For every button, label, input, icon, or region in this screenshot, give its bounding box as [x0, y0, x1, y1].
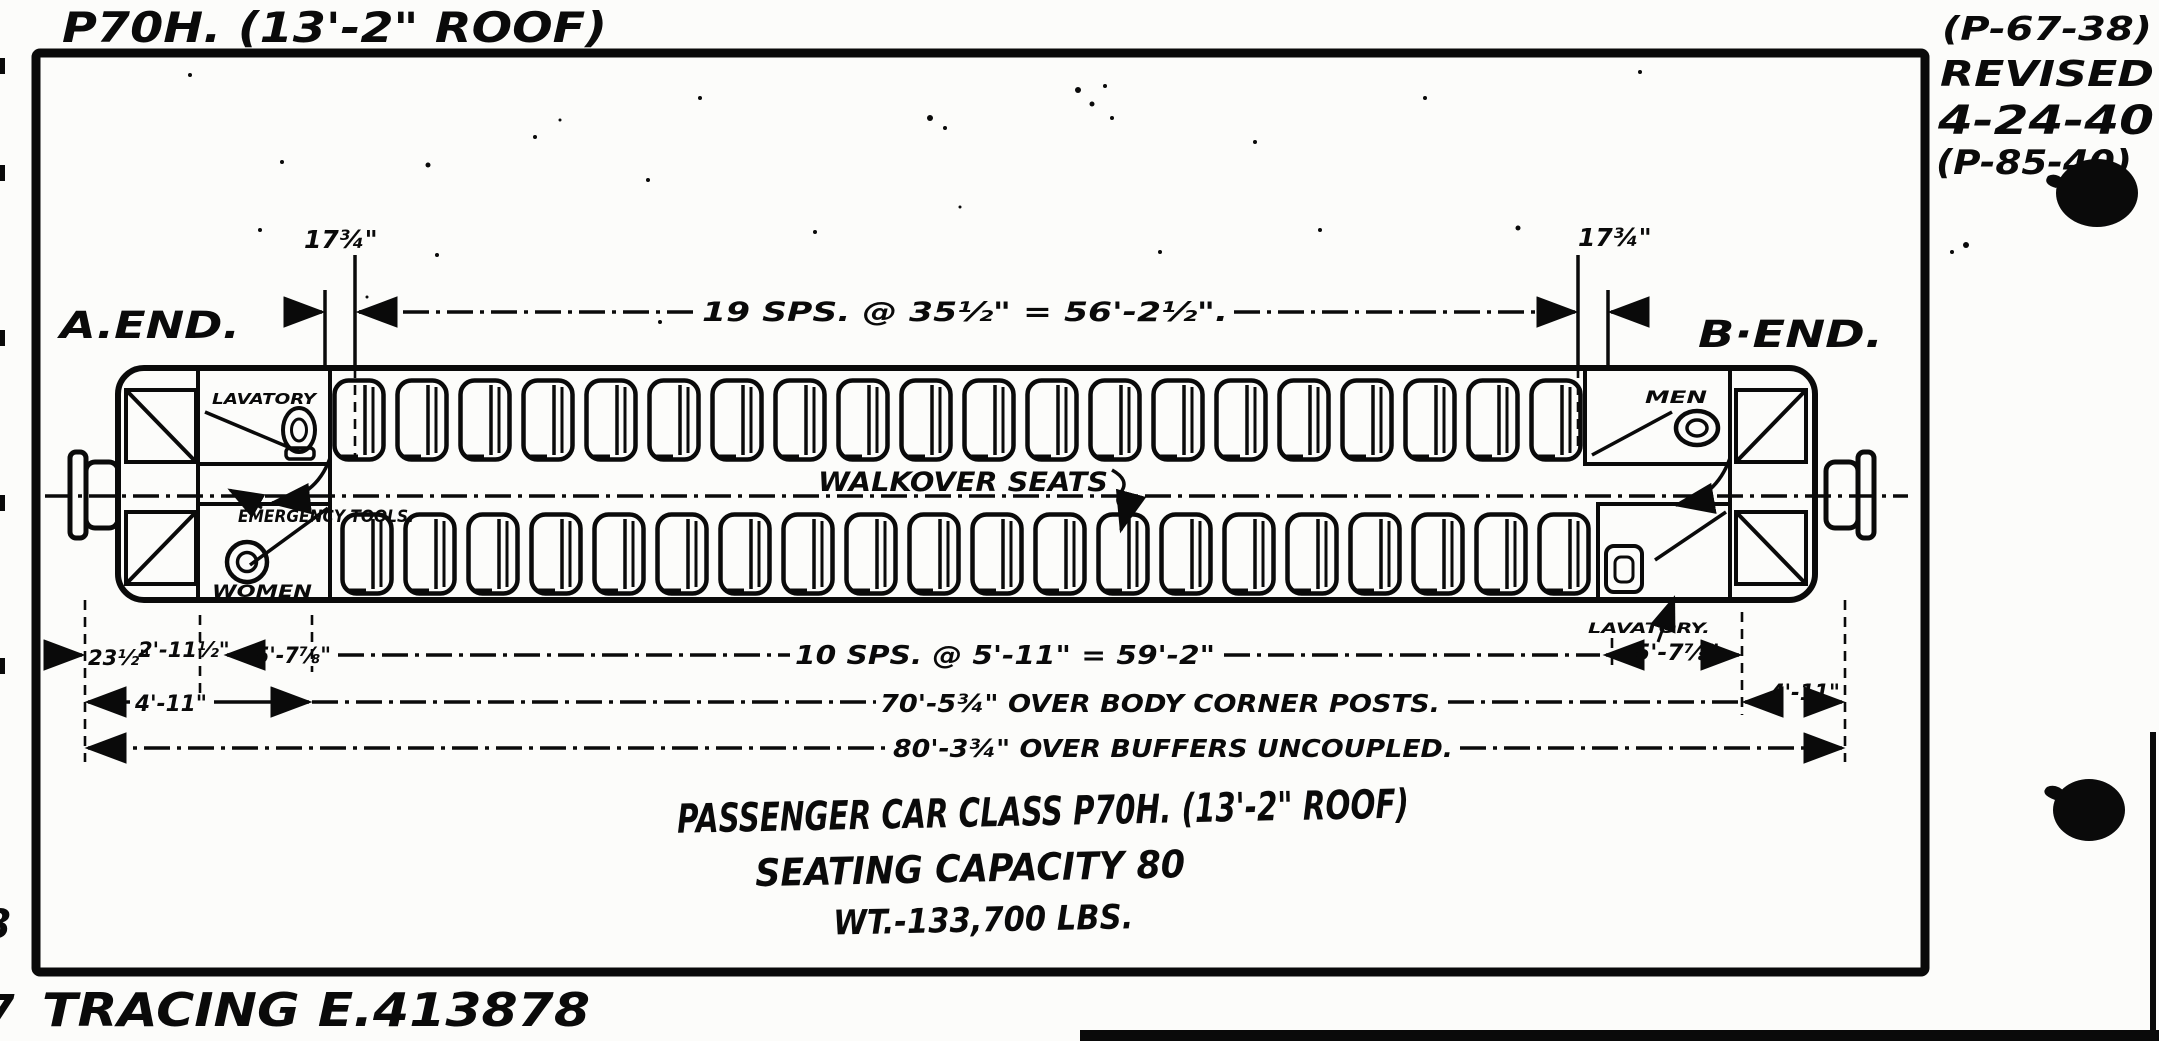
toilet-icon — [1676, 411, 1718, 445]
walkover-seat — [902, 381, 951, 460]
walkover-seat — [650, 381, 699, 460]
b-end-label: B·END. — [1698, 313, 1883, 356]
dim-17-left: 17¾" — [304, 225, 378, 254]
room-label-men: MEN — [1645, 388, 1707, 408]
room-lavatory-front: LAVATORY — [198, 368, 330, 464]
toilet-icon — [227, 542, 267, 582]
room-label-women: WOMEN — [212, 582, 312, 602]
walkover-seat — [776, 381, 825, 460]
dim-row-3: 80'-3¾" OVER BUFFERS UNCOUPLED. — [88, 734, 1842, 763]
revision-date: 4-24-40 — [1937, 98, 2154, 144]
walkover-seat — [595, 515, 644, 594]
scan-edge-right — [2150, 732, 2156, 1041]
dim-5-7-left: 5'-7⅞" — [255, 644, 331, 669]
dim-5-7-right: 5'-7⅞" — [1634, 641, 1720, 666]
dim-body-posts: 70'-5¾" OVER BODY CORNER POSTS. — [880, 689, 1440, 718]
scan-edge-bottom — [1080, 1030, 2159, 1041]
title-block: PASSENGER CAR CLASS P70H. (13'-2" ROOF) … — [677, 781, 1412, 946]
walkover-seat — [1280, 381, 1329, 460]
walkover-seat — [1154, 381, 1203, 460]
walkover-seat — [847, 515, 896, 594]
callout-brace — [1112, 470, 1129, 512]
walkover-seat — [1217, 381, 1266, 460]
walkover-seat — [1288, 515, 1337, 594]
walkover-seat — [1406, 381, 1455, 460]
room-men: MEN — [1585, 368, 1730, 464]
walkover-seat — [1028, 381, 1077, 460]
walkover-seat — [713, 381, 762, 460]
dim-buffers: 80'-3¾" OVER BUFFERS UNCOUPLED. — [893, 734, 1453, 763]
walkover-seat — [1343, 381, 1392, 460]
walkover-seat — [587, 381, 636, 460]
seat-row-top — [335, 381, 1581, 460]
walkover-seat — [1540, 515, 1589, 594]
dim-4-11-left: 4'-11" — [134, 692, 207, 717]
walkover-seat — [1091, 381, 1140, 460]
walkover-seat — [1414, 515, 1463, 594]
walkover-seat — [398, 381, 447, 460]
seat-row-bottom — [343, 515, 1589, 594]
walkover-seat — [1469, 381, 1518, 460]
walkover-seat — [1532, 381, 1581, 460]
toilet-icon — [1606, 546, 1642, 592]
title-line2: SEATING CAPACITY 80 — [755, 842, 1186, 895]
walkover-seat — [1036, 515, 1085, 594]
walkover-seat — [973, 515, 1022, 594]
walkover-seat — [965, 381, 1014, 460]
car-plan: LAVATORY WOMEN EMERGENCY TOOLS. MEN — [45, 368, 1908, 642]
dim-row-1: 23½" 2'-11½" 5'-7⅞" 10 SPS. @ 5'-11" = 5… — [58, 638, 1739, 671]
walkover-seat — [1477, 515, 1526, 594]
walkover-seat — [469, 515, 518, 594]
walkover-seat — [1162, 515, 1211, 594]
room-label-lavatory-rear: LAVATORY. — [1588, 621, 1710, 637]
walkover-seat — [1225, 515, 1274, 594]
title-line1: PASSENGER CAR CLASS P70H. (13'-2" ROOF) — [677, 781, 1410, 842]
margin-fragment-bottom: 7 — [0, 986, 15, 1037]
walkover-seat — [1351, 515, 1400, 594]
room-label-lavatory-front: LAVATORY — [212, 390, 319, 408]
walkover-seat — [524, 381, 573, 460]
walkover-label: WALKOVER SEATS — [818, 467, 1108, 498]
walkover-seat — [532, 515, 581, 594]
revision-ref: (P-67-38) — [1942, 9, 2152, 48]
walkover-seat — [658, 515, 707, 594]
sheet-note: P70H. (13'-2" ROOF) — [62, 3, 607, 52]
dim-17-right: 17¾" — [1578, 223, 1652, 252]
walkover-seat — [839, 381, 888, 460]
dim-row-2: 4'-11" 70'-5¾" OVER BODY CORNER POSTS. 4… — [88, 681, 1842, 718]
dim-2-11: 2'-11½" — [138, 638, 230, 662]
bottom-dimensions: 23½" 2'-11½" 5'-7⅞" 10 SPS. @ 5'-11" = 5… — [58, 600, 1845, 763]
walkover-seat — [461, 381, 510, 460]
dim-19sps: 19 SPS. @ 35½" = 56'-2½". — [702, 297, 1228, 328]
revision-block: (P-67-38) REVISED 4-24-40 (P-85-40) — [1936, 9, 2154, 227]
walkover-seat — [335, 381, 384, 460]
tracing-number: TRACING E.413878 — [42, 983, 590, 1037]
walkover-seat — [784, 515, 833, 594]
top-dimension: 17¾" 17¾" 19 SPS. @ 35½" = 56'-2½". — [292, 223, 1652, 455]
ink-blot-right — [2053, 779, 2125, 841]
blueprint-svg: P70H. (13'-2" ROOF) (P-67-38) REVISED 4-… — [0, 0, 2159, 1041]
toilet-icon — [283, 408, 315, 452]
walkover-seat — [910, 515, 959, 594]
room-lavatory-rear — [1598, 504, 1730, 600]
lavatory-rear-callout: LAVATORY. — [1588, 598, 1710, 642]
dim-10sps: 10 SPS. @ 5'-11" = 59'-2" — [795, 641, 1215, 671]
title-line3: WT.-133,700 LBS. — [833, 897, 1134, 943]
margin-fragment-mid: 8 — [0, 902, 11, 948]
ink-blot — [2056, 159, 2138, 227]
revision-label: REVISED — [1940, 54, 2154, 95]
walkover-seat — [721, 515, 770, 594]
drawing-sheet: P70H. (13'-2" ROOF) (P-67-38) REVISED 4-… — [0, 0, 2159, 1041]
a-end-label: A.END. — [56, 304, 240, 347]
